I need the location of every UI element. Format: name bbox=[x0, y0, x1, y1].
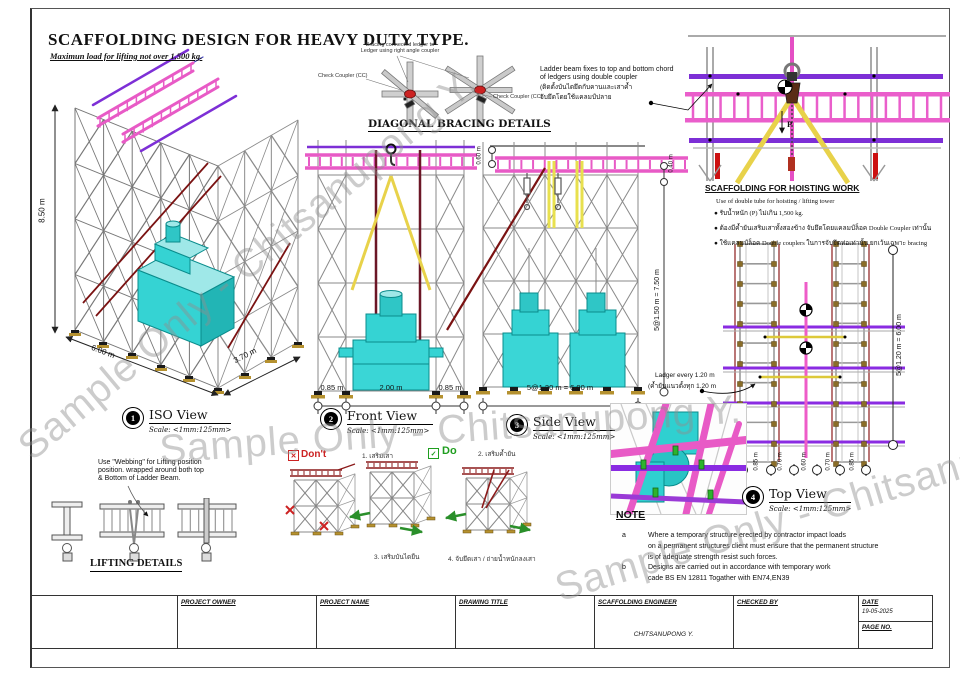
drawing-sheet-page: SCAFFOLDING DESIGN FOR HEAVY DUTY TYPE. … bbox=[0, 0, 960, 678]
ladder-note-line4: จับยึดโดยใช้แคลมป์ปลาย bbox=[540, 94, 673, 101]
ladder-beam-note: Ladder beam fixes to top and bottom chor… bbox=[540, 66, 673, 101]
dont-checkbox-icon: ✕ bbox=[288, 450, 299, 461]
view-number: 2 bbox=[324, 412, 338, 426]
project-name-header: PROJECT NAME bbox=[320, 599, 369, 606]
date-value: 19-05-2025 bbox=[862, 609, 893, 616]
do-checkbox-icon: ✓ bbox=[428, 448, 439, 459]
project-owner-header: PROJECT OWNER bbox=[181, 599, 236, 606]
top-dim-b3: 0.60 m bbox=[802, 436, 809, 486]
bracing-heading: DIAGONAL BRACING DETAILS bbox=[368, 118, 551, 132]
hoisting-bullet-3-text: ใช้แคลมป์ล็อค Double couplers ในการจับยึ… bbox=[720, 240, 928, 247]
dont-sketch bbox=[286, 464, 359, 535]
page-no-header: PAGE NO. bbox=[862, 624, 892, 631]
do-caption-2: 2. เสริมค้ำยัน bbox=[478, 451, 515, 458]
bracing-heading-text: DIAGONAL BRACING DETAILS bbox=[368, 118, 551, 132]
bracing-callout-line2: Ledger using right angle coupler bbox=[340, 48, 460, 54]
note-a-key: a bbox=[622, 532, 626, 540]
top-dim-b4: 0.70 m bbox=[826, 436, 833, 486]
hoisting-bullet-2-text: ต้องมีค้ำยันเสริมเสาทั้งสองข้าง จับยึดโด… bbox=[720, 225, 932, 232]
i-beam bbox=[52, 502, 82, 540]
coupler-closeup-inset bbox=[610, 403, 747, 515]
load-p-label: P bbox=[787, 120, 792, 130]
view-scale: Scale: <1mm:125mm> bbox=[347, 425, 433, 435]
do-sketch-1 bbox=[350, 462, 435, 532]
do-caption-3: 3. เสริมบันไดยืน bbox=[374, 554, 420, 561]
hoisting-bullet-1: ● รับน้ำหนัก (P) ไม่เกิน 1,500 kg. bbox=[714, 210, 803, 217]
bracing-callout: Bracing connected ledger to Ledger using… bbox=[340, 42, 460, 55]
view-name: ISO View bbox=[149, 407, 231, 424]
view-number-badge: 3 bbox=[506, 414, 528, 436]
do-caption-4: 4. จับยึดเสา / ถ่ายน้ำหนักลงเสา bbox=[448, 556, 536, 563]
top-dim-b2: 0.70 m bbox=[778, 436, 785, 486]
webbing-note: Use "Webbing" for Lifting position posit… bbox=[98, 459, 204, 483]
hoisting-bullet-2: ● ต้องมีค้ำยันเสริมเสาทั้งสองข้าง จับยึด… bbox=[714, 225, 931, 232]
iso-equipment bbox=[138, 221, 234, 346]
side-view-label: 3 Side View Scale: <1mm:125mm> bbox=[506, 414, 615, 441]
top-view-label: 4 Top View Scale: <1mm:125mm> bbox=[742, 486, 851, 513]
view-name: Side View bbox=[533, 414, 615, 431]
iso-top-beams bbox=[93, 50, 236, 151]
check-coupler-right-label: Check Coupler (CC) bbox=[493, 94, 543, 100]
hoisting-subheading: Use of double tube for hoisting / liftin… bbox=[716, 198, 834, 205]
hoisting-heading: SCAFFOLDING FOR HOISTING WORK bbox=[705, 184, 859, 194]
front-dim-left: 0.85 m bbox=[312, 384, 352, 393]
iso-view-label: 1 ISO View Scale: <1mm:125mm> bbox=[122, 407, 231, 434]
front-dim-right: 0.85 m bbox=[430, 384, 470, 393]
page-subtitle: Maximun load for lifting not over 1,500 … bbox=[50, 52, 202, 62]
side-dim-top-left: 0.60 m bbox=[477, 130, 484, 180]
front-view-label: 2 Front View Scale: <1mm:125mm> bbox=[320, 408, 433, 435]
view-name: Front View bbox=[347, 408, 433, 425]
checked-by-header: CHECKED BY bbox=[737, 599, 778, 606]
note-a-line1: Where a temporary structure erected by c… bbox=[648, 532, 878, 540]
ladger-note-line1: Ladger every 1.20 m bbox=[655, 372, 715, 379]
do-label: Do bbox=[442, 445, 457, 458]
do-sketch-2 bbox=[446, 468, 531, 533]
check-coupler-left-label: Check Coupler (CC) bbox=[318, 73, 368, 79]
top-dim-b1: 0.85 m bbox=[754, 436, 761, 486]
notes-heading: NOTE bbox=[616, 509, 645, 521]
iso-view-drawing bbox=[38, 48, 310, 410]
view-number: 4 bbox=[746, 490, 760, 504]
note-b-line2: cade BS EN 12811 Togather with EN74,EN39 bbox=[648, 575, 830, 583]
left-cross bbox=[382, 62, 439, 124]
webbing-note-line2: position. wrapped around both top bbox=[98, 467, 204, 475]
ladder-note-line1: Ladder beam fixes to top and bottom chor… bbox=[540, 66, 673, 74]
pump-equipment bbox=[339, 291, 443, 391]
top-dim-b5: 0.85 m bbox=[850, 436, 857, 486]
webbing-note-line1: Use "Webbing" for Lifting position bbox=[98, 459, 204, 467]
view-scale: Scale: <1mm:125mm> bbox=[149, 424, 231, 434]
webbing-note-line3: & Bottom of Ladder Beam. bbox=[98, 475, 204, 483]
dont-label: Don't bbox=[301, 449, 326, 461]
ladder-note-line2: of ledgers using double coupler bbox=[540, 74, 673, 82]
note-b-line1: Designs are carried out in accordance wi… bbox=[648, 564, 830, 572]
engineer-header: SCAFFOLDING ENGINEER bbox=[598, 599, 677, 606]
ladder-note-line3: (ติดตั้งบันไดยึดกับคานและเสาค้ำ bbox=[540, 84, 673, 91]
hoisting-detail-drawing bbox=[685, 35, 950, 185]
view-scale: Scale: <1mm:125mm> bbox=[533, 431, 615, 441]
ledger-lines bbox=[723, 327, 905, 446]
hoisting-bullet-3: ● ใช้แคลมป์ล็อค Double couplers ในการจับ… bbox=[714, 240, 927, 247]
view-name: Top View bbox=[769, 486, 851, 503]
view-number-badge: 4 bbox=[742, 486, 764, 508]
view-number-badge: 2 bbox=[320, 408, 342, 430]
note-b-key: b bbox=[622, 564, 626, 572]
view-number: 1 bbox=[126, 411, 140, 425]
drawing-title-header: DRAWING TITLE bbox=[459, 599, 508, 606]
right-cross bbox=[445, 56, 515, 126]
date-header: DATE bbox=[862, 599, 878, 606]
view-scale: Scale: <1mm:125mm> bbox=[769, 503, 851, 513]
hoisting-bullet-1-text: รับน้ำหนัก (P) ไม่เกิน 1,500 kg. bbox=[720, 210, 804, 217]
note-a-line2: on a permanent structures client must en… bbox=[648, 543, 878, 551]
side-dim-vertical: 5@1.50 m = 7.50 m bbox=[654, 255, 662, 345]
ladder-beam-webbing bbox=[100, 500, 164, 561]
view-number: 3 bbox=[510, 418, 524, 432]
side-dim-bottom: 5@1.20 m = 6.00 m bbox=[520, 384, 600, 393]
top-dim-vertical: 5@1.20 m = 6.00 m bbox=[896, 300, 904, 390]
title-block: PROJECT OWNER PROJECT NAME DRAWING TITLE… bbox=[30, 595, 933, 649]
front-dim-center: 2.00 m bbox=[371, 384, 411, 393]
ladder-beam-plate bbox=[178, 498, 236, 561]
lifting-heading: LIFTING DETAILS bbox=[90, 558, 182, 572]
side-dim-top-right: 0.40 m bbox=[669, 138, 676, 188]
view-number-badge: 1 bbox=[122, 407, 144, 429]
note-a-line3: is of adequate strength resist such forc… bbox=[648, 554, 878, 562]
top-view-drawing bbox=[723, 236, 913, 482]
ladger-note-line2: (ค้ำยันแนวตั้งทุก 1.20 m bbox=[648, 383, 716, 390]
note-b-text: Designs are carried out in accordance wi… bbox=[648, 564, 830, 583]
iso-dim-height: 8.50 m bbox=[37, 181, 46, 241]
engineer-value: CHITSANUPONG Y. bbox=[594, 631, 733, 638]
note-a-text: Where a temporary structure erected by c… bbox=[648, 532, 878, 562]
do-caption-1: 1. เสริมเสา bbox=[362, 453, 393, 460]
lifting-heading-text: LIFTING DETAILS bbox=[90, 558, 182, 572]
